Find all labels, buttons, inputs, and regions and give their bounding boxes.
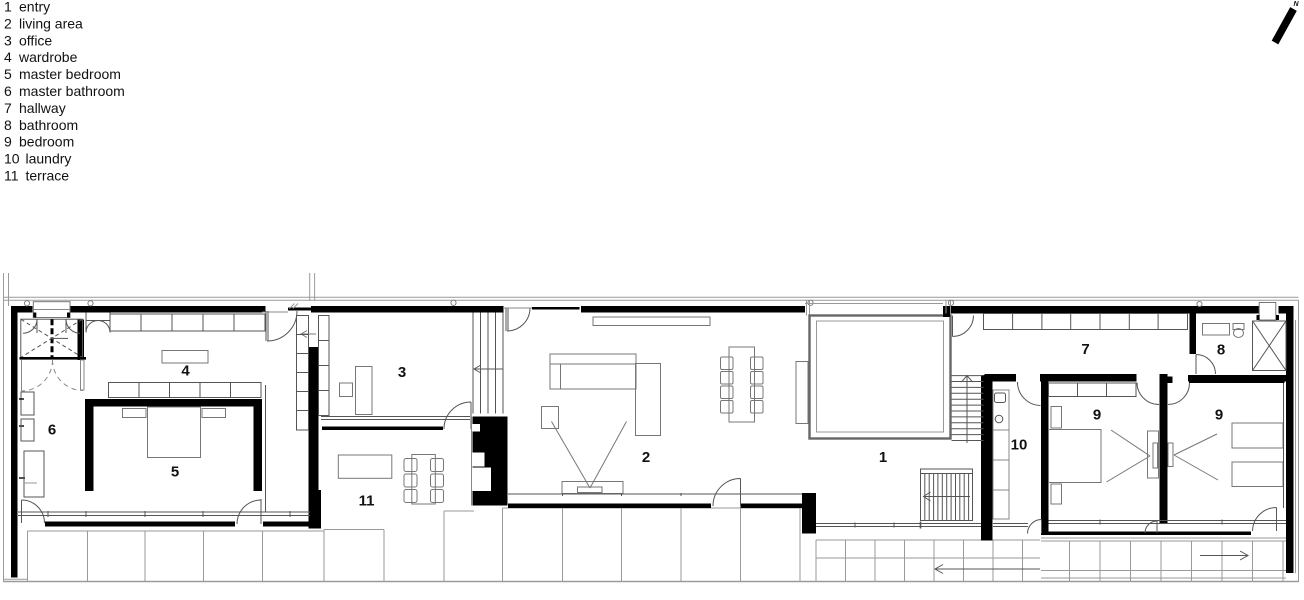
svg-text:8: 8 xyxy=(1217,342,1225,359)
svg-text:1: 1 xyxy=(4,0,12,15)
svg-text:9: 9 xyxy=(1093,407,1101,424)
svg-text:6: 6 xyxy=(4,83,12,99)
svg-text:9: 9 xyxy=(4,134,12,150)
svg-text:N: N xyxy=(1294,1,1300,8)
svg-text:2: 2 xyxy=(642,449,650,466)
svg-text:3: 3 xyxy=(4,32,12,48)
svg-text:7: 7 xyxy=(4,100,12,116)
svg-text:hallway: hallway xyxy=(19,100,66,116)
svg-text:bathroom: bathroom xyxy=(19,117,78,133)
svg-text:4: 4 xyxy=(181,363,190,380)
svg-text:laundry: laundry xyxy=(26,151,72,167)
svg-text:5: 5 xyxy=(171,464,179,481)
svg-text:11: 11 xyxy=(359,493,375,510)
svg-text:wardrobe: wardrobe xyxy=(18,49,78,65)
svg-text:office: office xyxy=(19,32,52,48)
svg-text:9: 9 xyxy=(1215,407,1223,424)
svg-text:6: 6 xyxy=(48,422,56,439)
svg-text:terrace: terrace xyxy=(26,168,70,184)
svg-text:7: 7 xyxy=(1081,341,1089,358)
svg-text:8: 8 xyxy=(4,117,12,133)
svg-text:4: 4 xyxy=(4,49,12,65)
svg-text:10: 10 xyxy=(1011,437,1028,454)
svg-text:10: 10 xyxy=(4,151,20,167)
svg-text:11: 11 xyxy=(4,168,19,184)
svg-text:entry: entry xyxy=(19,0,50,15)
svg-text:3: 3 xyxy=(398,364,406,381)
svg-text:master bedroom: master bedroom xyxy=(19,66,121,82)
svg-text:5: 5 xyxy=(4,66,12,82)
svg-text:master bathroom: master bathroom xyxy=(19,83,125,99)
svg-text:1: 1 xyxy=(879,449,887,466)
svg-text:bedroom: bedroom xyxy=(19,134,74,150)
svg-text:living area: living area xyxy=(19,15,83,31)
svg-text:2: 2 xyxy=(4,15,12,31)
